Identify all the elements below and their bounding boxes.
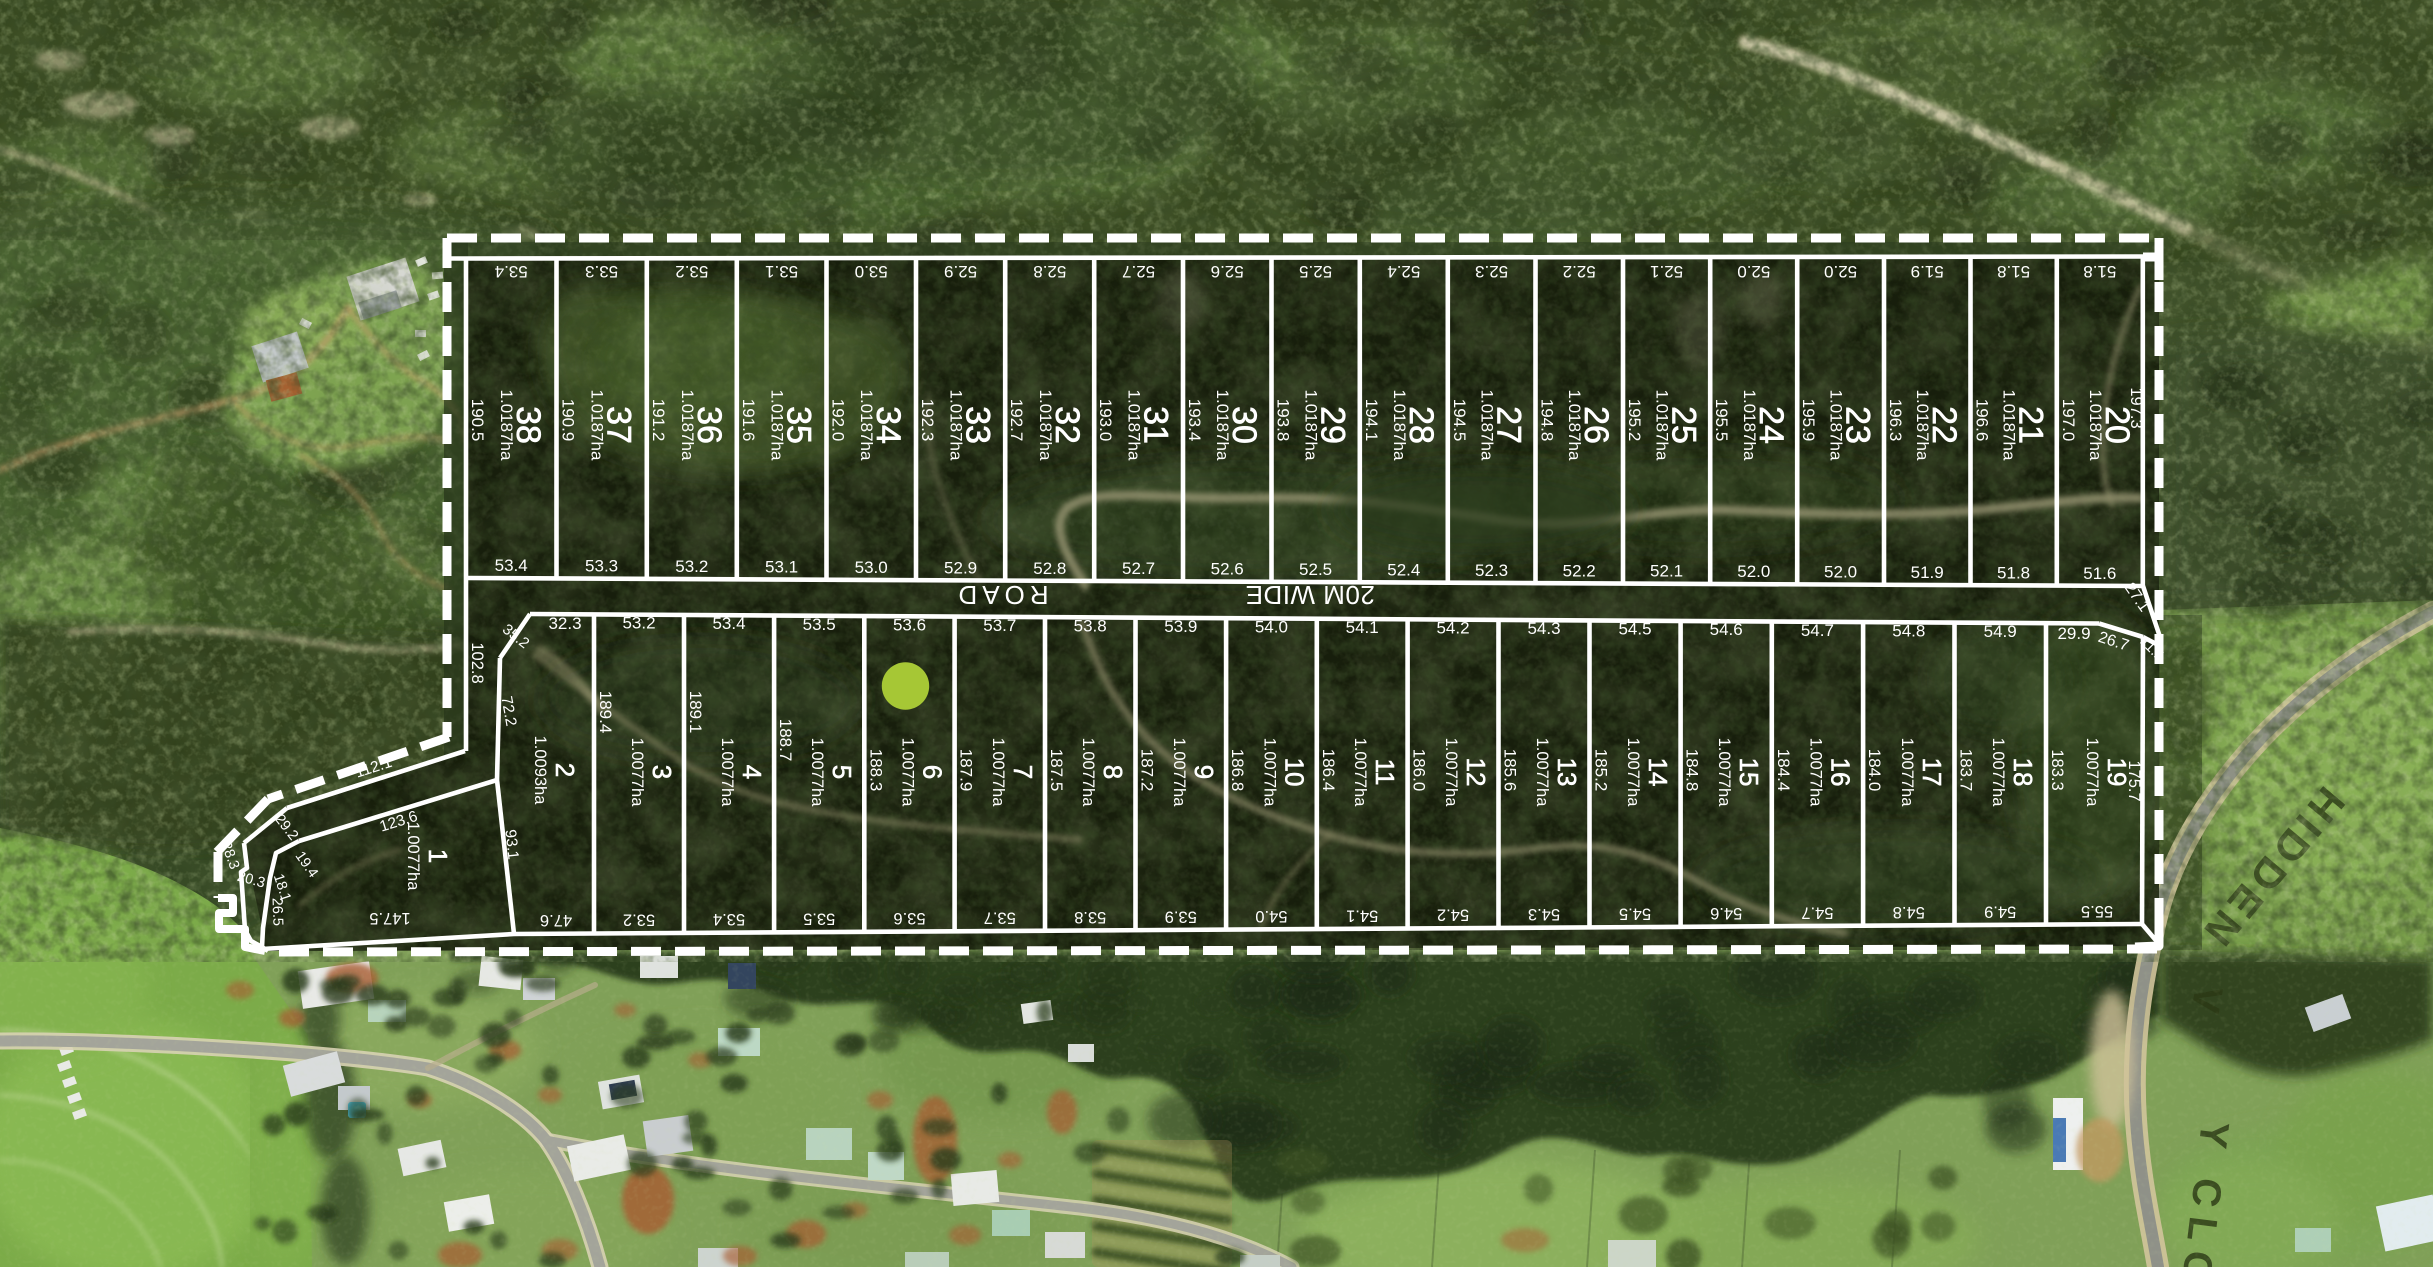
svg-text:52.1: 52.1 [1650, 262, 1683, 281]
svg-text:188.3: 188.3 [866, 749, 885, 792]
svg-text:1.0187ha: 1.0187ha [1740, 390, 1759, 461]
svg-text:183.3: 183.3 [2048, 749, 2066, 790]
svg-text:54.9: 54.9 [1984, 622, 2017, 641]
svg-text:194.1: 194.1 [1362, 399, 1381, 442]
svg-text:52.6: 52.6 [1211, 262, 1244, 281]
svg-text:53.0: 53.0 [855, 262, 888, 281]
svg-text:53.9: 53.9 [1165, 907, 1197, 925]
svg-text:1.0077ha: 1.0077ha [628, 738, 646, 808]
svg-text:54.3: 54.3 [1527, 619, 1560, 638]
svg-text:1.0077ha: 1.0077ha [1989, 738, 2007, 808]
svg-text:190.5: 190.5 [468, 399, 487, 442]
svg-text:54.5: 54.5 [1619, 905, 1651, 923]
svg-text:52.4: 52.4 [1387, 262, 1420, 281]
svg-text:185.6: 185.6 [1501, 749, 1520, 792]
svg-text:17: 17 [1917, 758, 1947, 787]
svg-text:51.6: 51.6 [2083, 564, 2116, 583]
svg-text:192.0: 192.0 [829, 399, 848, 442]
svg-text:1.0077ha: 1.0077ha [1533, 738, 1551, 808]
svg-text:1.0187ha: 1.0187ha [497, 390, 516, 461]
svg-text:54.2: 54.2 [1436, 619, 1469, 638]
svg-text:1.0077ha: 1.0077ha [1715, 738, 1733, 808]
svg-text:1.0077ha: 1.0077ha [1442, 738, 1460, 808]
svg-text:1.0077ha: 1.0077ha [989, 738, 1007, 808]
svg-text:1.0077ha: 1.0077ha [1898, 738, 1916, 808]
svg-text:18: 18 [2008, 758, 2038, 787]
svg-text:51.8: 51.8 [2083, 262, 2116, 281]
svg-text:54.7: 54.7 [1801, 621, 1834, 640]
svg-text:1.0077ha: 1.0077ha [1260, 738, 1278, 808]
svg-text:189.1: 189.1 [686, 691, 705, 734]
svg-text:1.0093ha: 1.0093ha [531, 736, 549, 806]
svg-text:193.0: 193.0 [1096, 399, 1115, 442]
svg-text:1.0077ha: 1.0077ha [1170, 738, 1188, 808]
svg-text:52.7: 52.7 [1122, 262, 1155, 281]
svg-text:1.0187ha: 1.0187ha [947, 390, 966, 461]
svg-text:51.8: 51.8 [1997, 563, 2030, 582]
svg-text:1.0077ha: 1.0077ha [1624, 738, 1642, 808]
svg-text:53.8: 53.8 [1074, 908, 1106, 926]
svg-text:52.9: 52.9 [944, 558, 977, 577]
svg-text:53.1: 53.1 [765, 558, 798, 577]
svg-text:4: 4 [737, 765, 767, 779]
svg-text:197.0: 197.0 [2059, 399, 2078, 442]
svg-text:187.9: 187.9 [957, 749, 976, 792]
svg-text:195.2: 195.2 [1625, 399, 1644, 442]
svg-text:1.0077ha: 1.0077ha [718, 738, 736, 808]
svg-text:53.2: 53.2 [675, 557, 708, 576]
svg-text:1: 1 [423, 849, 453, 863]
svg-text:16: 16 [1825, 758, 1855, 787]
svg-text:54.8: 54.8 [1892, 621, 1925, 640]
svg-text:52.3: 52.3 [1475, 561, 1508, 580]
svg-text:1.0077ha: 1.0077ha [1806, 738, 1824, 808]
svg-text:14: 14 [1643, 758, 1673, 787]
svg-text:54.8: 54.8 [1893, 903, 1925, 921]
svg-text:54.0: 54.0 [1255, 618, 1288, 637]
svg-text:52.3: 52.3 [1475, 262, 1508, 281]
svg-text:191.2: 191.2 [649, 399, 668, 442]
svg-text:10: 10 [1279, 758, 1309, 787]
svg-text:196.6: 196.6 [1973, 399, 1992, 442]
svg-text:47.6: 47.6 [540, 911, 572, 929]
svg-text:53.2: 53.2 [675, 262, 708, 281]
svg-text:1.0187ha: 1.0187ha [1653, 390, 1672, 461]
svg-text:190.9: 190.9 [559, 399, 578, 442]
svg-text:53.3: 53.3 [585, 557, 618, 576]
svg-text:54.6: 54.6 [1710, 904, 1742, 922]
svg-text:1.0077ha: 1.0077ha [1351, 738, 1369, 808]
svg-text:195.9: 195.9 [1799, 399, 1818, 442]
svg-text:196.3: 196.3 [1886, 399, 1905, 442]
svg-text:54.1: 54.1 [1346, 906, 1378, 924]
svg-text:53.4: 53.4 [495, 556, 528, 575]
svg-text:53.4: 53.4 [713, 910, 745, 928]
svg-text:53.8: 53.8 [1074, 616, 1107, 635]
svg-text:52.4: 52.4 [1387, 561, 1420, 580]
svg-text:183.7: 183.7 [1957, 749, 1976, 792]
svg-text:29.9: 29.9 [2057, 624, 2090, 643]
svg-text:186.0: 186.0 [1410, 749, 1429, 792]
svg-text:54.9: 54.9 [1984, 902, 2016, 920]
svg-text:53.5: 53.5 [803, 615, 836, 634]
svg-text:20M WIDE: 20M WIDE [1245, 580, 1375, 610]
svg-text:51.8: 51.8 [1997, 262, 2030, 281]
svg-text:1.0187ha: 1.0187ha [1827, 390, 1846, 461]
svg-text:8: 8 [1098, 765, 1128, 779]
svg-text:192.3: 192.3 [918, 399, 937, 442]
svg-text:1.0187ha: 1.0187ha [1478, 390, 1497, 461]
svg-text:1.0187ha: 1.0187ha [1302, 390, 1321, 461]
svg-text:147.5: 147.5 [369, 909, 410, 927]
svg-text:11: 11 [1370, 759, 1400, 786]
svg-text:52.1: 52.1 [1650, 562, 1683, 581]
svg-text:192.7: 192.7 [1007, 399, 1026, 442]
svg-text:53.0: 53.0 [855, 558, 888, 577]
svg-text:1.0077ha: 1.0077ha [808, 738, 826, 808]
svg-text:1.0187ha: 1.0187ha [2086, 390, 2105, 461]
svg-text:9: 9 [1189, 765, 1219, 779]
svg-text:187.2: 187.2 [1138, 749, 1157, 792]
svg-text:1.0187ha: 1.0187ha [857, 390, 876, 461]
svg-text:53.5: 53.5 [803, 910, 835, 928]
svg-text:52.9: 52.9 [944, 262, 977, 281]
svg-text:7: 7 [1008, 765, 1038, 779]
svg-text:1.0187ha: 1.0187ha [588, 390, 607, 461]
svg-text:54.1: 54.1 [1346, 618, 1379, 637]
svg-text:2: 2 [550, 763, 580, 777]
svg-text:193.4: 193.4 [1185, 399, 1204, 442]
svg-text:1.0187ha: 1.0187ha [2000, 390, 2019, 461]
svg-text:1.0187ha: 1.0187ha [1390, 390, 1409, 461]
svg-text:1.0187ha: 1.0187ha [1036, 390, 1055, 461]
svg-text:53.4: 53.4 [712, 614, 745, 633]
svg-text:26.5: 26.5 [269, 897, 286, 926]
svg-text:53.4: 53.4 [495, 262, 528, 281]
svg-text:52.2: 52.2 [1563, 262, 1596, 281]
svg-text:52.6: 52.6 [1211, 560, 1244, 579]
svg-text:188.7: 188.7 [776, 719, 795, 762]
svg-text:55.5: 55.5 [2081, 902, 2113, 920]
svg-text:32.3: 32.3 [548, 614, 581, 633]
svg-text:189.4: 189.4 [596, 691, 615, 734]
svg-text:1.0077ha: 1.0077ha [899, 738, 917, 808]
svg-text:53.2: 53.2 [623, 911, 655, 929]
svg-text:53.7: 53.7 [984, 909, 1016, 927]
svg-text:191.6: 191.6 [739, 399, 758, 442]
svg-text:52.5: 52.5 [1299, 262, 1332, 281]
svg-text:53.2: 53.2 [622, 614, 655, 633]
svg-text:186.4: 186.4 [1319, 749, 1338, 792]
svg-text:3: 3 [647, 765, 677, 779]
svg-text:1.0187ha: 1.0187ha [768, 390, 787, 461]
svg-text:ROAD: ROAD [953, 580, 1048, 610]
svg-text:1.0187ha: 1.0187ha [678, 390, 697, 461]
svg-text:54.6: 54.6 [1710, 620, 1743, 639]
svg-text:195.5: 195.5 [1712, 399, 1731, 442]
svg-text:54.3: 54.3 [1528, 905, 1560, 923]
svg-text:53.7: 53.7 [983, 616, 1016, 635]
svg-text:187.5: 187.5 [1047, 749, 1066, 792]
svg-text:1.0187ha: 1.0187ha [1565, 390, 1584, 461]
svg-text:15: 15 [1734, 758, 1764, 787]
svg-text:1.0187ha: 1.0187ha [1125, 390, 1144, 461]
svg-text:52.0: 52.0 [1824, 262, 1857, 281]
svg-text:53.9: 53.9 [1164, 617, 1197, 636]
svg-text:1.0077ha: 1.0077ha [2083, 738, 2101, 808]
svg-text:184.0: 184.0 [1865, 749, 1884, 792]
svg-text:184.4: 184.4 [1774, 749, 1793, 792]
svg-text:194.8: 194.8 [1538, 399, 1557, 442]
svg-text:1.0187ha: 1.0187ha [1913, 390, 1932, 461]
svg-text:53.1: 53.1 [765, 262, 798, 281]
svg-text:52.8: 52.8 [1033, 262, 1066, 281]
svg-text:54.5: 54.5 [1618, 620, 1651, 639]
svg-text:1.0077ha: 1.0077ha [404, 822, 422, 892]
svg-text:52.2: 52.2 [1563, 561, 1596, 580]
svg-text:52.0: 52.0 [1824, 563, 1857, 582]
svg-text:53.6: 53.6 [893, 615, 926, 634]
svg-text:54.0: 54.0 [1255, 907, 1287, 925]
svg-text:19: 19 [2102, 758, 2132, 787]
svg-text:93.1: 93.1 [501, 829, 521, 861]
svg-text:54.7: 54.7 [1801, 904, 1833, 922]
svg-text:53.6: 53.6 [893, 909, 925, 927]
svg-text:54.2: 54.2 [1437, 906, 1469, 924]
svg-text:13: 13 [1552, 758, 1582, 787]
svg-text:51.9: 51.9 [1911, 262, 1944, 281]
svg-text:1.0187ha: 1.0187ha [1213, 390, 1232, 461]
svg-text:184.8: 184.8 [1683, 749, 1702, 792]
svg-text:185.2: 185.2 [1592, 749, 1611, 792]
svg-text:52.0: 52.0 [1737, 562, 1770, 581]
svg-text:193.8: 193.8 [1274, 399, 1293, 442]
svg-text:53.3: 53.3 [585, 262, 618, 281]
svg-text:197.3: 197.3 [2127, 387, 2145, 428]
svg-text:1.0077ha: 1.0077ha [1079, 738, 1097, 808]
svg-text:52.0: 52.0 [1737, 262, 1770, 281]
svg-text:51.9: 51.9 [1911, 563, 1944, 582]
svg-text:194.5: 194.5 [1450, 399, 1469, 442]
svg-text:5: 5 [827, 765, 857, 779]
svg-text:52.8: 52.8 [1033, 559, 1066, 578]
svg-text:52.7: 52.7 [1122, 559, 1155, 578]
svg-text:12: 12 [1461, 758, 1491, 787]
svg-text:52.5: 52.5 [1299, 560, 1332, 579]
svg-text:102.8: 102.8 [468, 642, 486, 683]
svg-text:186.8: 186.8 [1228, 749, 1247, 792]
svg-text:6: 6 [918, 765, 948, 779]
